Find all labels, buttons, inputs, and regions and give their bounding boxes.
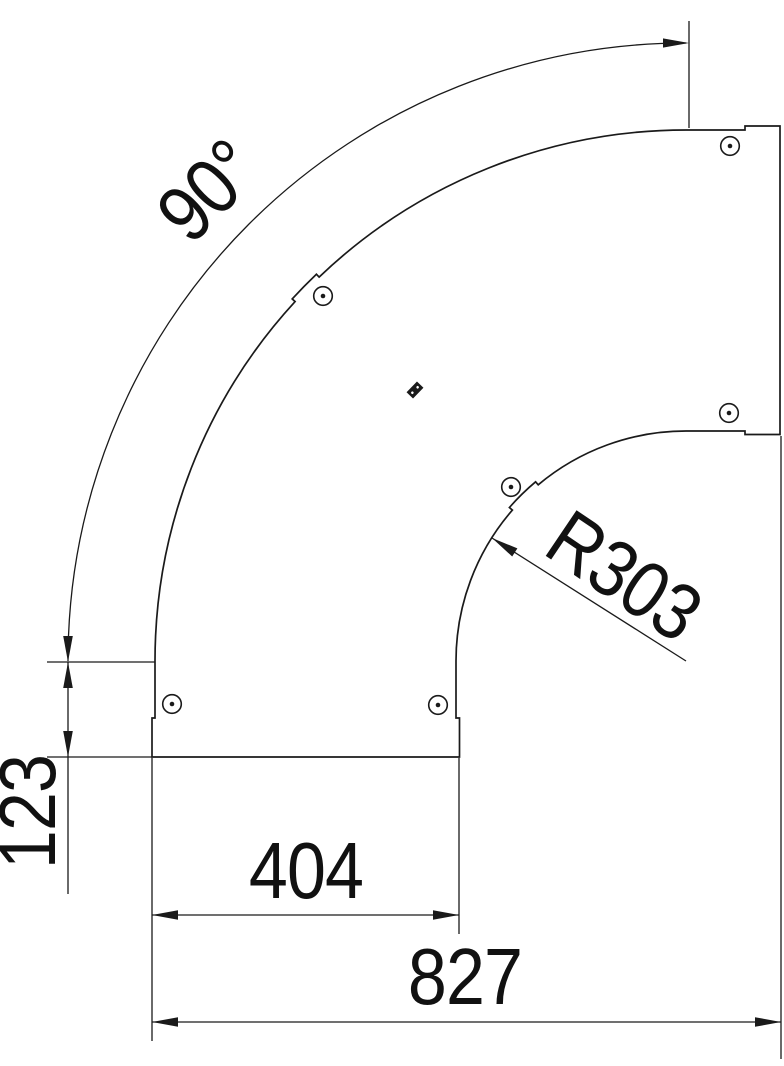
drawing-sheet: 90° R303 123 404 827 [0, 0, 784, 1066]
screw-hole [429, 696, 448, 715]
radius-arrow [492, 538, 517, 557]
screw-hole [721, 137, 740, 156]
screw-hole [502, 478, 521, 497]
bend-cover-outline [152, 126, 780, 757]
overall-arrow-left [152, 1017, 178, 1027]
technical-drawing-canvas [0, 0, 784, 1066]
center-clip-mark [407, 381, 424, 398]
screw-hole [314, 287, 333, 306]
width-arrow-left [152, 910, 178, 920]
port-width-dimension-label: 404 [249, 831, 363, 911]
angle-arrow-left [63, 636, 73, 662]
leg-arrow-bottom [63, 731, 73, 757]
overall-arrow-right [755, 1017, 781, 1027]
leg-length-dimension-label: 123 [0, 755, 68, 869]
overall-length-dimension-label: 827 [408, 937, 522, 1017]
screw-hole [720, 404, 739, 423]
width-arrow-right [433, 910, 459, 920]
screw-hole [163, 695, 182, 714]
angle-arrow-top [663, 38, 689, 47]
leg-arrow-top [63, 662, 73, 688]
